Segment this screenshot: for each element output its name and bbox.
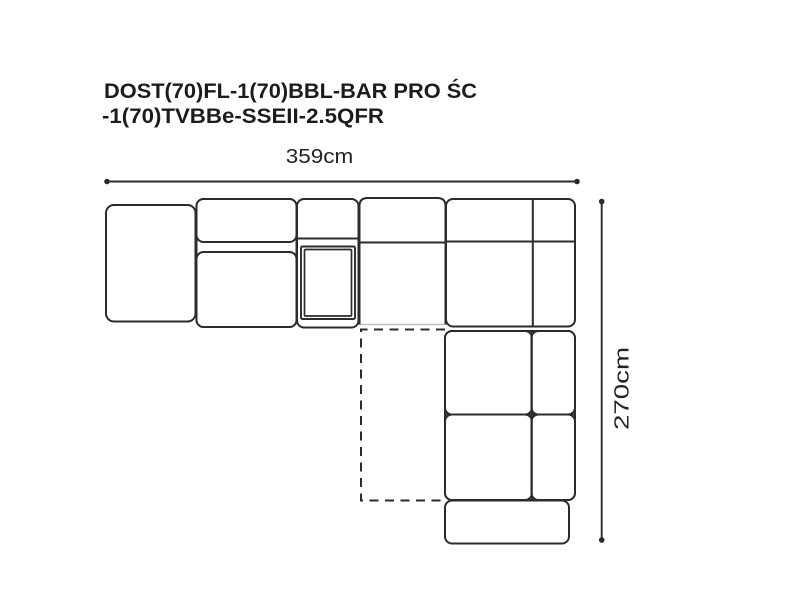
svg-text:-1(70)TVBBe-SSEII-2.5QFR: -1(70)TVBBe-SSEII-2.5QFR: [102, 104, 384, 128]
svg-text:DOST(70)FL-1(70)BBL-BAR PRO ŚC: DOST(70)FL-1(70)BBL-BAR PRO ŚC: [104, 78, 477, 103]
svg-text:270cm: 270cm: [611, 347, 634, 430]
svg-text:359cm: 359cm: [286, 145, 354, 168]
